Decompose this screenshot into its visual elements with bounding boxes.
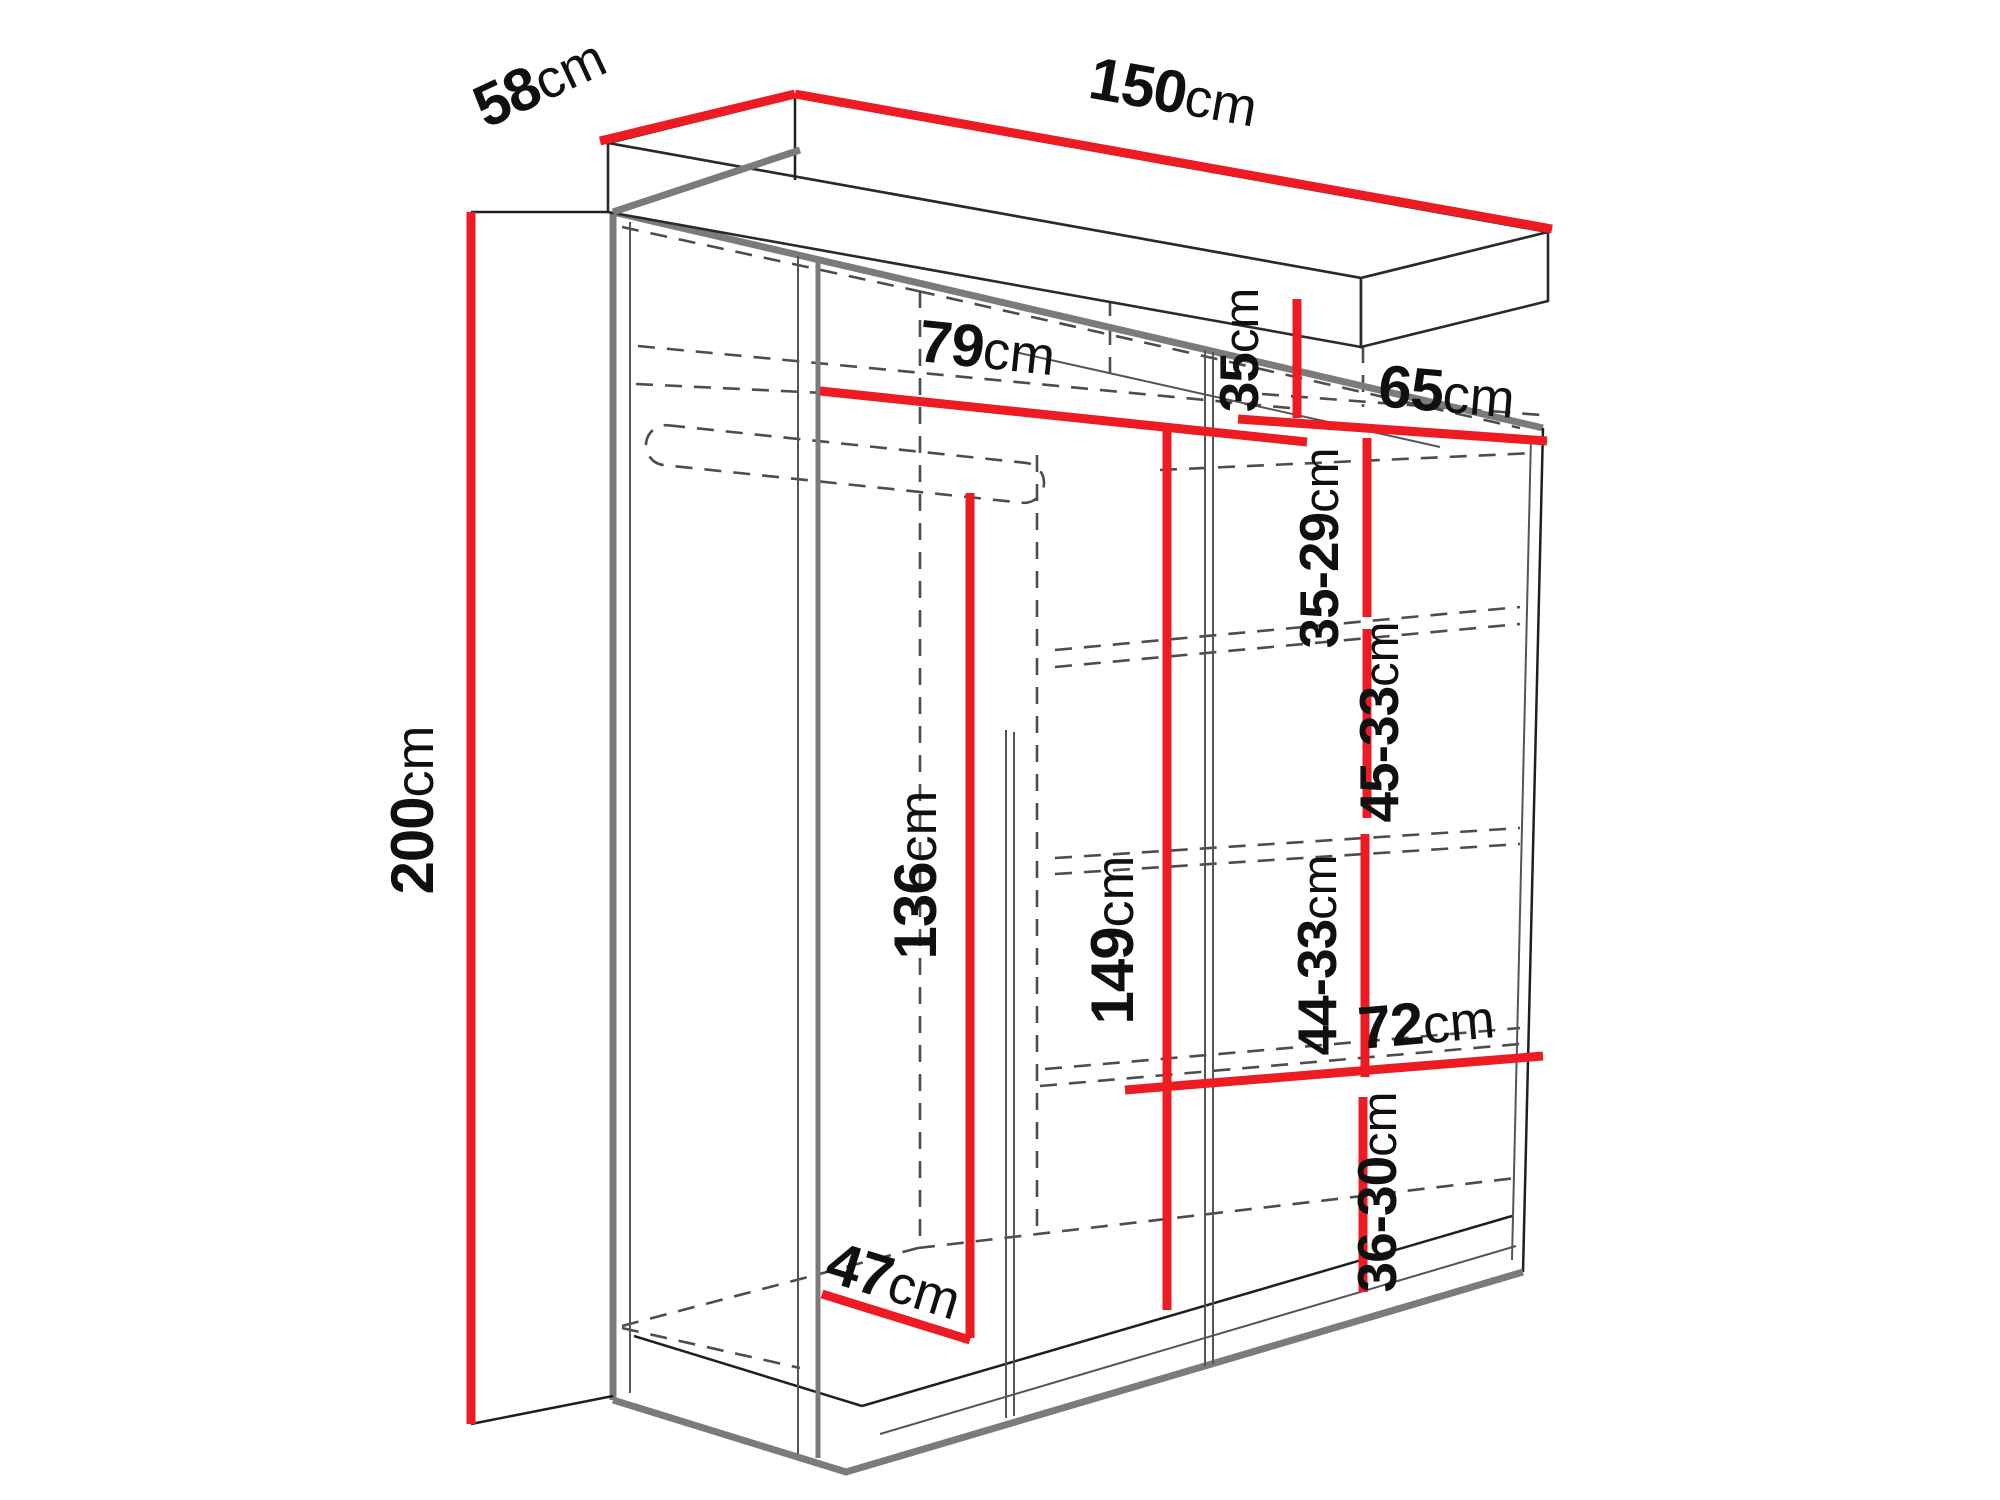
- label-drop-35: 35cm: [1208, 288, 1270, 413]
- label-shelf-65: 65cm: [1376, 352, 1518, 431]
- label-gap-36-30: 36-30cm: [1346, 1092, 1408, 1293]
- wardrobe-dimension-diagram: 58cm 150cm 200cm 79cm 35cm 65cm 35-29cm …: [0, 0, 2000, 1500]
- diagram-canvas: 58cm 150cm 200cm 79cm 35cm 65cm 35-29cm …: [0, 0, 2000, 1500]
- label-gap-35-29: 35-29cm: [1288, 448, 1350, 649]
- label-gap-45-33: 45-33cm: [1348, 622, 1410, 823]
- label-hanging-136: 136cm: [882, 790, 949, 959]
- crown-top-panel: [608, 97, 1548, 347]
- tick-bottom: [471, 1396, 613, 1424]
- label-width-150: 150cm: [1084, 44, 1262, 139]
- hanging-rail: [644, 423, 1046, 505]
- label-height-200: 200cm: [379, 725, 446, 894]
- label-shelf-72: 72cm: [1355, 983, 1497, 1062]
- label-depth-58: 58cm: [463, 22, 615, 141]
- label-inner-149: 149cm: [1079, 855, 1146, 1024]
- right-side-edge: [1523, 428, 1543, 1272]
- label-gap-44-33: 44-33cm: [1286, 855, 1348, 1056]
